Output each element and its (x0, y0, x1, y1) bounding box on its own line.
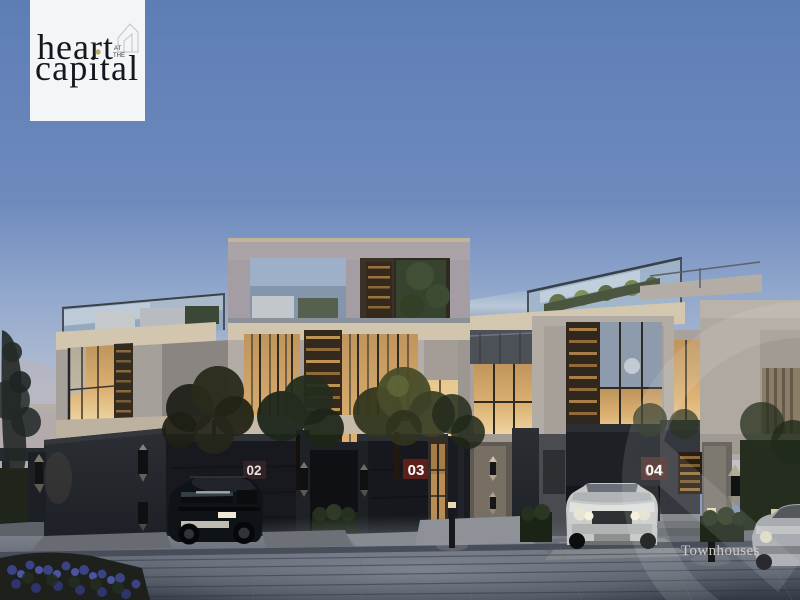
svg-text:THE: THE (113, 53, 125, 59)
svg-text:03: 03 (408, 462, 425, 479)
svg-text:02: 02 (246, 463, 261, 478)
svg-text:Townhouses: Townhouses (681, 543, 760, 559)
